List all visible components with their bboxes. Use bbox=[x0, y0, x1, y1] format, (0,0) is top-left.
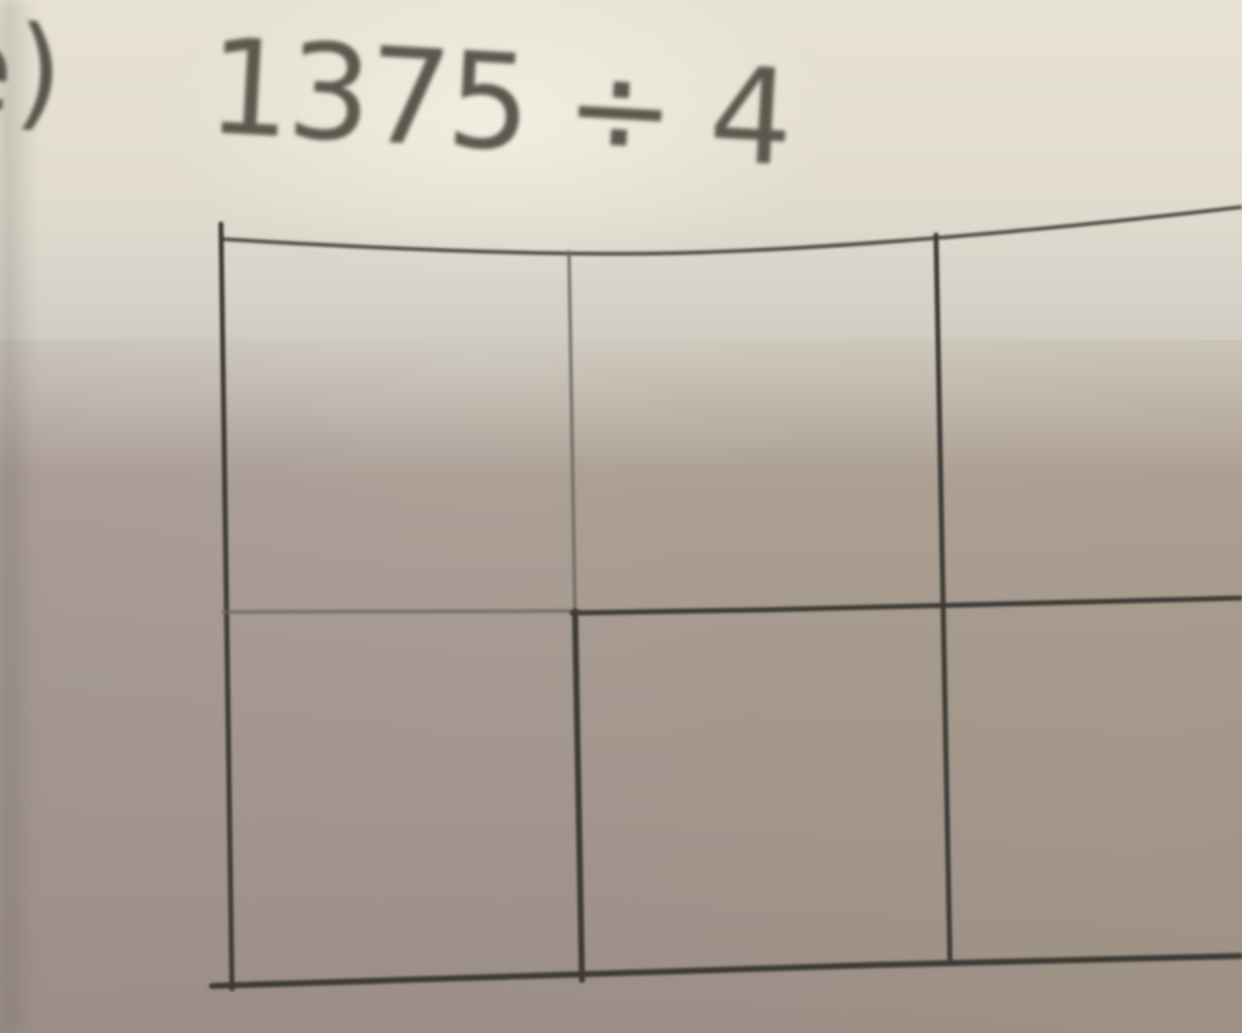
grid-cell-r2c2 bbox=[580, 612, 942, 974]
grid-cell-r1c2 bbox=[574, 248, 938, 610]
grid-cell-r2c1 bbox=[230, 614, 576, 982]
grid-cell-r2c3 bbox=[946, 604, 1242, 960]
grid-cells bbox=[0, 0, 1242, 1033]
grid-cell-r1c3 bbox=[942, 222, 1242, 604]
worksheet-photo: e) 1375 ÷ 4 bbox=[0, 0, 1242, 1033]
grid-cell-r1c1 bbox=[228, 248, 570, 610]
